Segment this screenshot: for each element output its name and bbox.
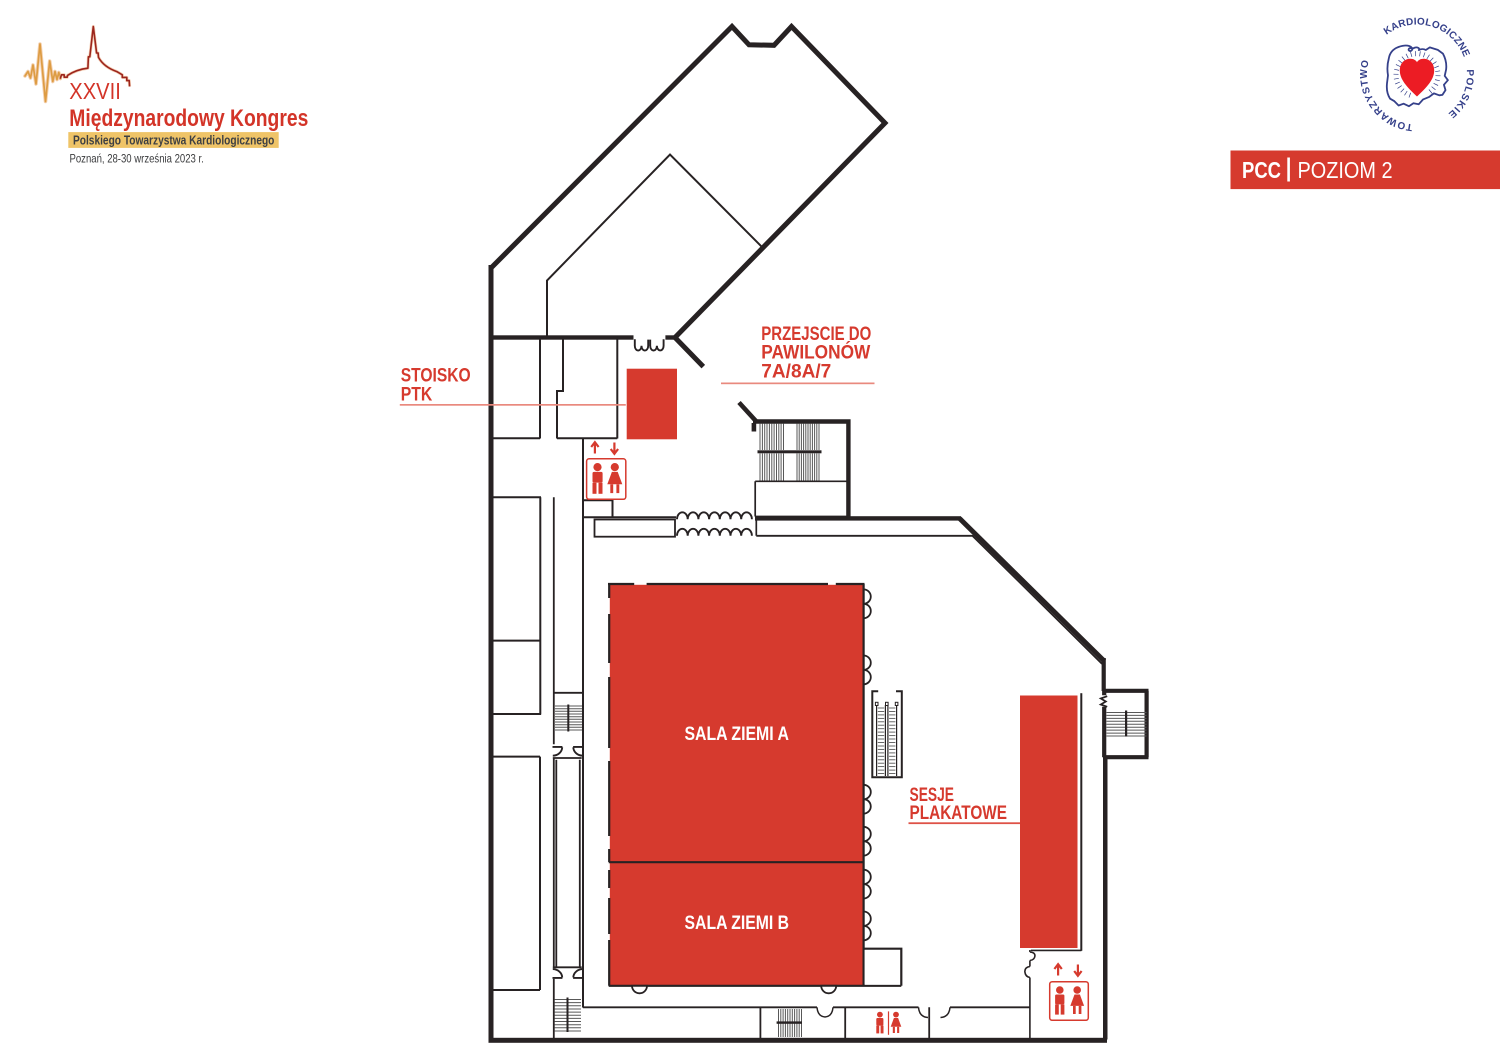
svg-text:KARDIOLOGICZNE: KARDIOLOGICZNE xyxy=(1382,16,1472,58)
svg-text:POZIOM 2: POZIOM 2 xyxy=(1298,157,1393,183)
svg-text:PTK: PTK xyxy=(401,384,433,406)
svg-text:Polskiego Towarzystwa Kardiolo: Polskiego Towarzystwa Kardiologicznego xyxy=(73,133,275,147)
svg-text:SALA ZIEMI A: SALA ZIEMI A xyxy=(684,724,789,745)
svg-text:XXVII: XXVII xyxy=(69,78,121,104)
svg-text:PLAKATOWE: PLAKATOWE xyxy=(910,802,1008,824)
svg-text:PCC: PCC xyxy=(1242,157,1281,183)
svg-text:Międzynarodowy Kongres: Międzynarodowy Kongres xyxy=(69,105,308,132)
svg-text:SALA ZIEMI B: SALA ZIEMI B xyxy=(685,913,790,934)
svg-text:Poznań, 28-30 września 2023 r.: Poznań, 28-30 września 2023 r. xyxy=(70,152,204,166)
svg-text:POLSKIE: POLSKIE xyxy=(1445,69,1475,120)
svg-text:7A/8A/7: 7A/8A/7 xyxy=(761,361,831,383)
